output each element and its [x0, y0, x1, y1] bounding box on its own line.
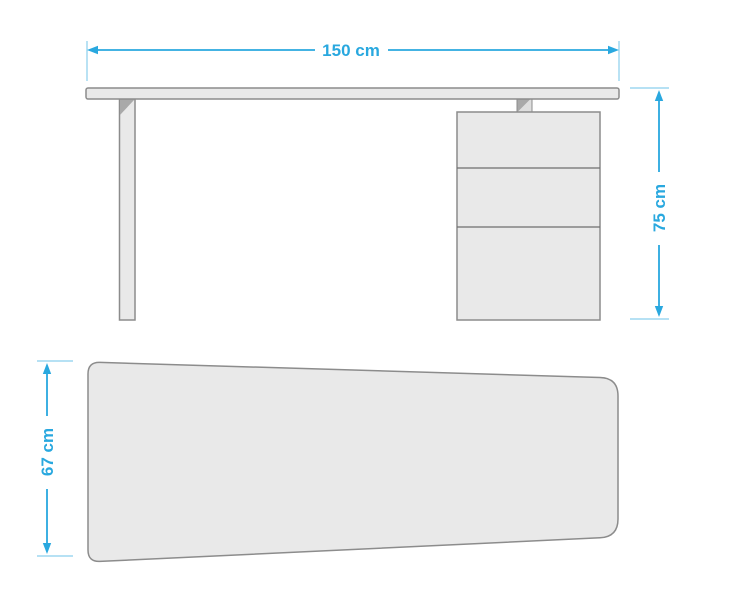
- top-view: [88, 362, 618, 561]
- left-leg: [120, 98, 136, 320]
- width-dimension-label: 150 cm: [322, 41, 380, 60]
- desk-surface-outline: [88, 362, 618, 561]
- height-dimension-label: 75 cm: [650, 184, 669, 232]
- desk-dimension-diagram: 150 cm 75 cm 67 cm: [0, 0, 750, 600]
- height-dimension: 75 cm: [630, 88, 669, 319]
- height-arrow-down-icon: [655, 306, 663, 317]
- tabletop: [86, 88, 619, 99]
- depth-arrow-down-icon: [43, 543, 51, 554]
- height-arrow-up-icon: [655, 90, 663, 101]
- depth-arrow-up-icon: [43, 363, 51, 374]
- width-arrow-right-icon: [608, 46, 619, 54]
- diagram-canvas: 150 cm 75 cm 67 cm: [0, 0, 750, 600]
- drawer-unit: [457, 112, 600, 320]
- width-arrow-left-icon: [87, 46, 98, 54]
- depth-dimension: 67 cm: [37, 361, 73, 556]
- front-view: [86, 88, 619, 320]
- depth-dimension-label: 67 cm: [38, 428, 57, 476]
- width-dimension: 150 cm: [87, 41, 619, 81]
